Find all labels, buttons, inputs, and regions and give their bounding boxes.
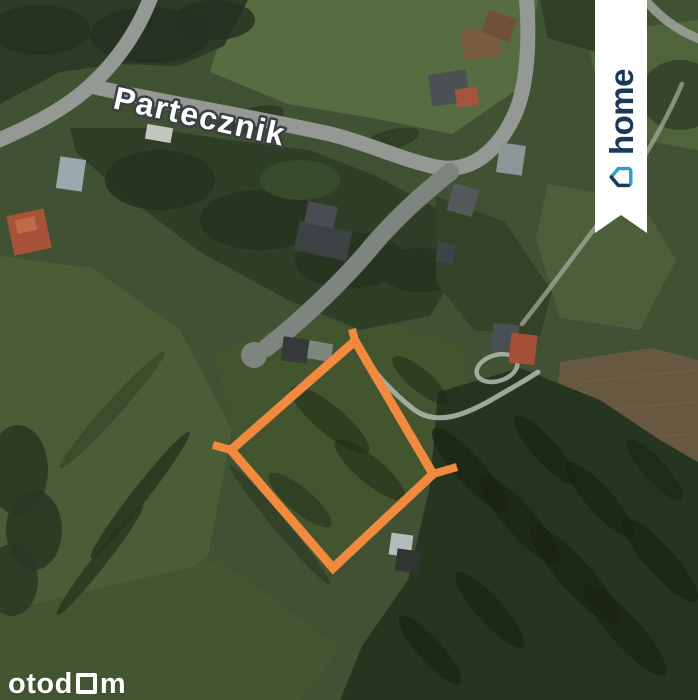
home-house-icon (608, 164, 634, 190)
home-brand-ribbon: home (595, 0, 647, 233)
otodom-watermark-text-right: m (100, 673, 126, 696)
home-brand-lockup: home (595, 0, 647, 233)
satellite-map: Partecznik (0, 0, 698, 700)
square-o-glyph (76, 673, 97, 694)
otodom-watermark: otod m (8, 673, 126, 696)
home-logo-text: home (605, 69, 638, 155)
listing-photo-satellite-map: Partecznik otod m home (0, 0, 698, 700)
otodom-watermark-text-left: otod (8, 673, 73, 696)
